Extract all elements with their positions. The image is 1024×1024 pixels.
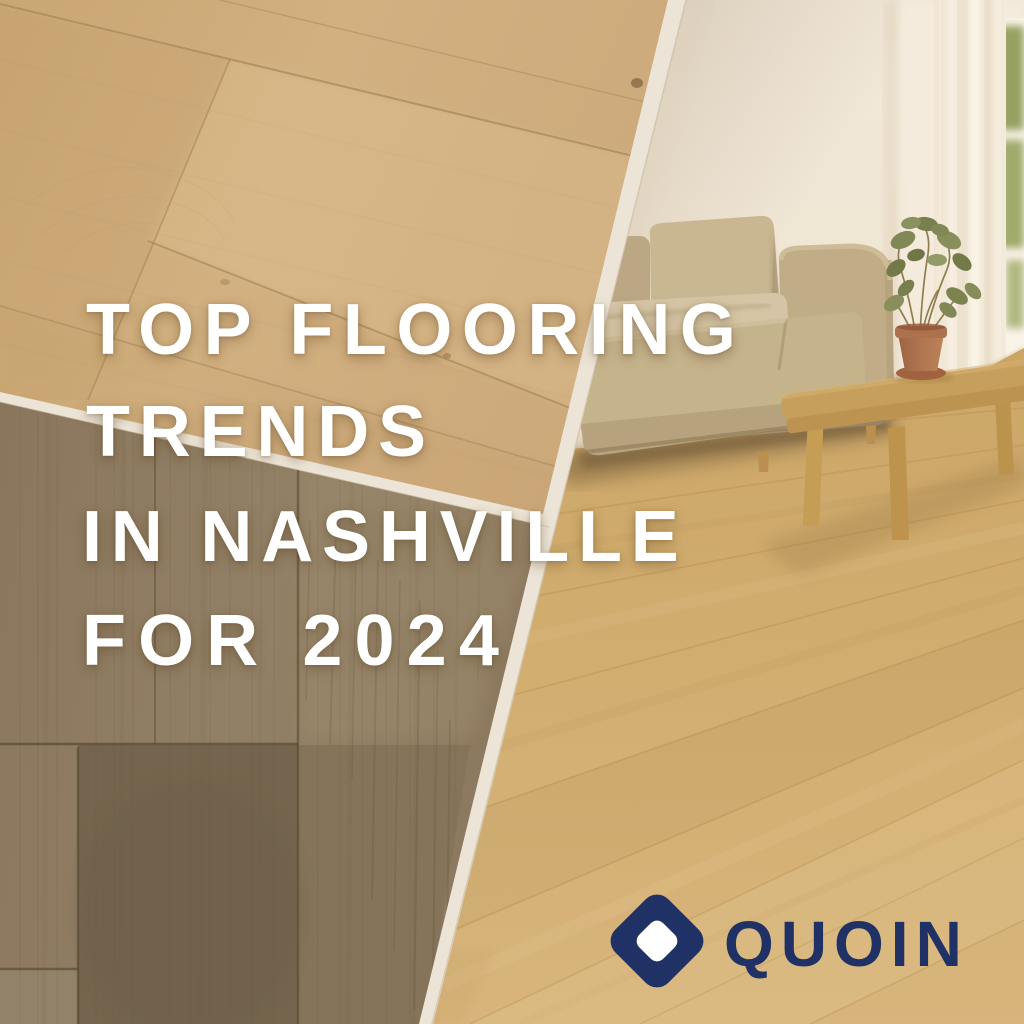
svg-text:QUOIN: QUOIN xyxy=(724,908,969,980)
